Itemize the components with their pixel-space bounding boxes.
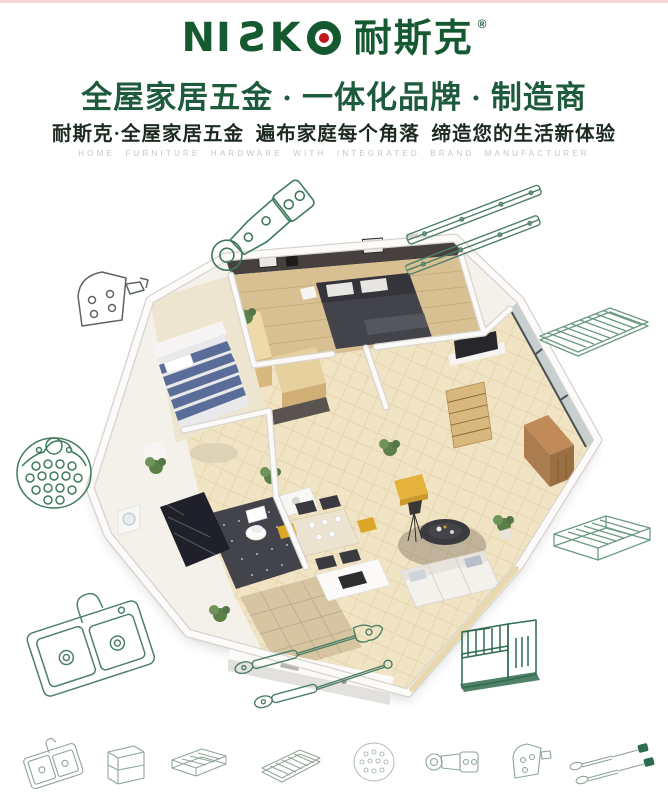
mounting-bracket-icon [505, 740, 555, 784]
logo-target-dot [319, 33, 329, 43]
bottom-icon-row [0, 730, 668, 796]
double-sink-icon [15, 728, 90, 797]
gas-struts-icon [568, 736, 656, 788]
wire-organizer-rack-drawing [450, 598, 544, 696]
perforated-plate-drawing [8, 428, 100, 514]
logo-latin-prefix: NI [181, 18, 231, 58]
logo-latin-s: S [236, 18, 266, 58]
wire-shelf-icon [258, 742, 324, 784]
subheadline: 耐斯克·全屋家居五金 遍布家庭每个角落 缔造您的生活新体验 [0, 117, 668, 146]
registered-mark: ® [478, 17, 487, 31]
perforated-plate-icon [350, 738, 398, 786]
concealed-hinge-icon [424, 744, 482, 780]
mounting-bracket-drawing [64, 266, 156, 340]
top-border-tint [0, 0, 668, 3]
wire-basket-icon [168, 744, 230, 782]
headline: 全屋家居五金 · 一体化品牌 · 制造商 [0, 72, 668, 117]
logo-target-o-icon [307, 21, 341, 55]
wire-basket-drawing [544, 508, 660, 574]
tagline-english: HOME FURNITURE HARDWARE WITH INTEGRATED … [0, 149, 668, 158]
poster: NI S K 耐斯克 ® 全屋家居五金 · 一体化品牌 · 制造商 耐斯克·全屋… [0, 0, 668, 800]
wire-cube-rack-icon [100, 738, 150, 788]
logo-chinese-name: 耐斯克 [354, 19, 474, 57]
logo-latin-k: K [270, 18, 302, 58]
brand-logo: NI S K 耐斯克 ® [0, 12, 668, 64]
wire-shelf-drawing [526, 300, 656, 362]
